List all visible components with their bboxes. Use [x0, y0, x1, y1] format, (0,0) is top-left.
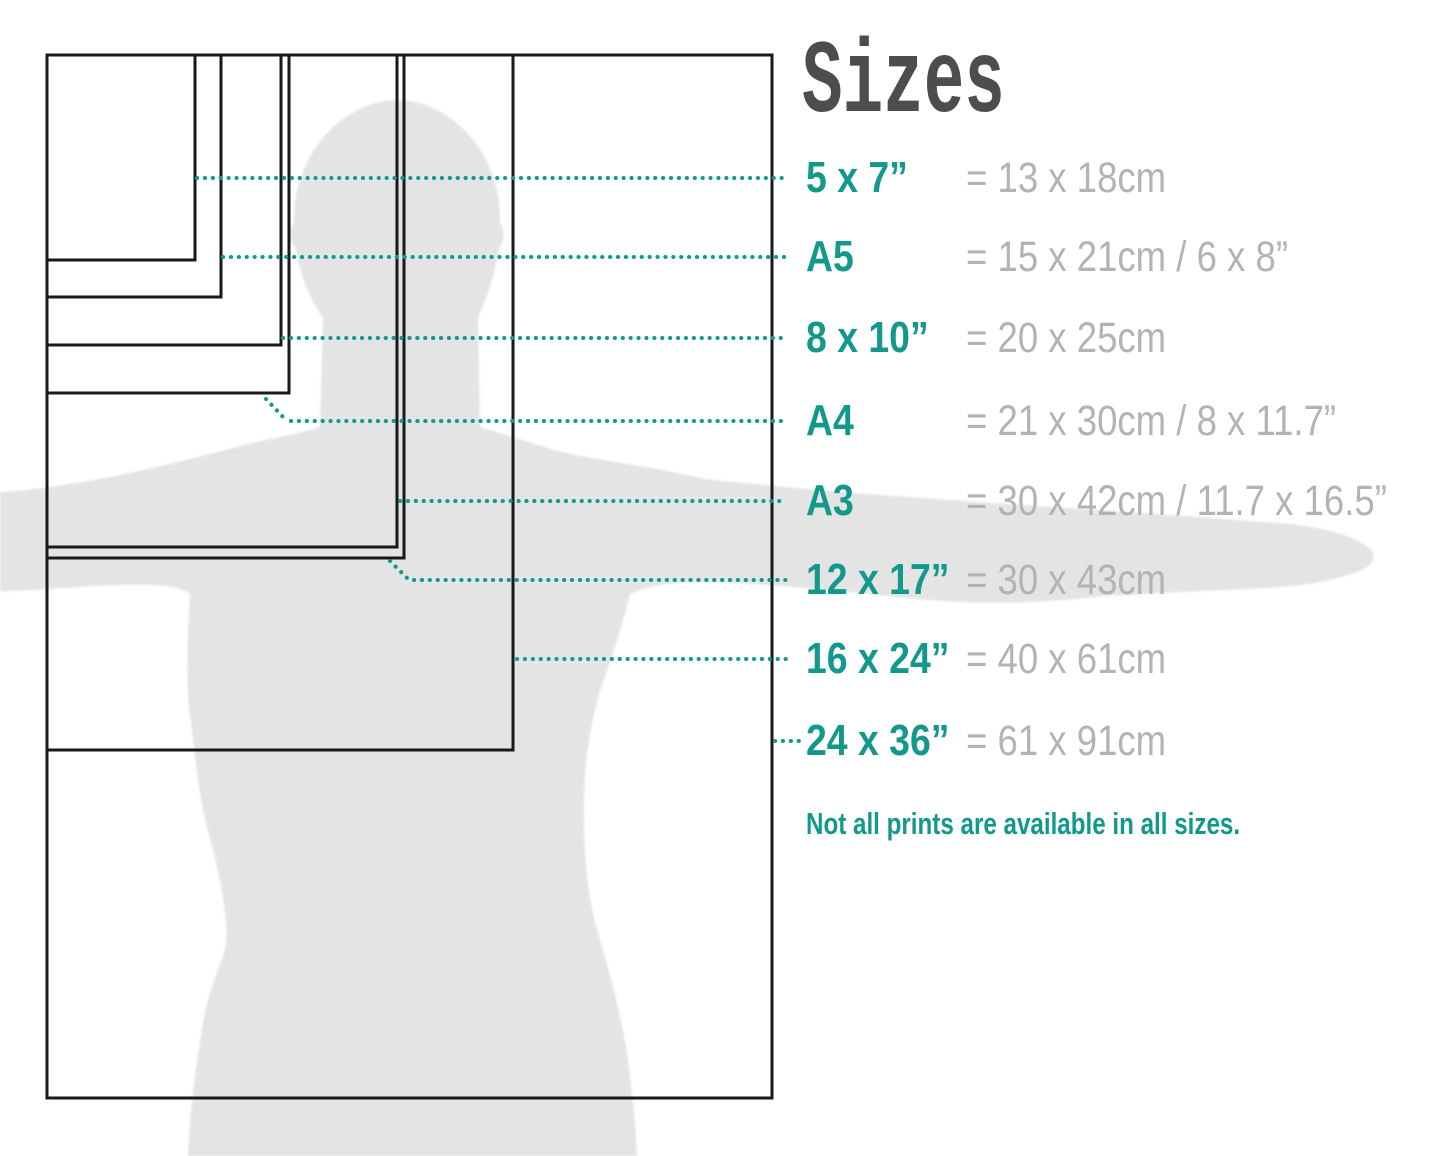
size-metric: = 40 x 61cm	[966, 632, 1166, 686]
size-row-5x7: 5 x 7” = 13 x 18cm	[0, 151, 1445, 205]
page-title: Sizes	[802, 32, 1005, 136]
size-label: 5 x 7”	[806, 151, 908, 205]
size-label: 24 x 36”	[806, 714, 949, 768]
availability-note: Not all prints are available in all size…	[806, 802, 1240, 846]
size-row-12x17: 12 x 17” = 30 x 43cm	[0, 553, 1445, 607]
size-label: A4	[806, 394, 854, 448]
size-row-a3: A3 = 30 x 42cm / 11.7 x 16.5”	[0, 474, 1445, 528]
size-label: 12 x 17”	[806, 553, 949, 607]
size-metric: = 61 x 91cm	[966, 714, 1166, 768]
size-guide-infographic: Sizes 5 x 7” = 13 x 18cm A5 = 15 x 21cm …	[0, 0, 1445, 1156]
size-row-16x24: 16 x 24” = 40 x 61cm	[0, 632, 1445, 686]
size-metric: = 15 x 21cm / 6 x 8”	[966, 230, 1288, 284]
size-label: 8 x 10”	[806, 311, 929, 365]
size-metric: = 30 x 42cm / 11.7 x 16.5”	[966, 474, 1387, 528]
size-metric: = 21 x 30cm / 8 x 11.7”	[966, 394, 1336, 448]
size-label: 16 x 24”	[806, 632, 949, 686]
size-row-a5: A5 = 15 x 21cm / 6 x 8”	[0, 230, 1445, 284]
size-metric: = 20 x 25cm	[966, 311, 1166, 365]
size-label: A5	[806, 230, 854, 284]
size-row-8x10: 8 x 10” = 20 x 25cm	[0, 311, 1445, 365]
size-row-24x36: 24 x 36” = 61 x 91cm	[0, 714, 1445, 768]
size-label: A3	[806, 474, 854, 528]
size-row-a4: A4 = 21 x 30cm / 8 x 11.7”	[0, 394, 1445, 448]
size-metric: = 30 x 43cm	[966, 553, 1166, 607]
size-metric: = 13 x 18cm	[966, 151, 1166, 205]
